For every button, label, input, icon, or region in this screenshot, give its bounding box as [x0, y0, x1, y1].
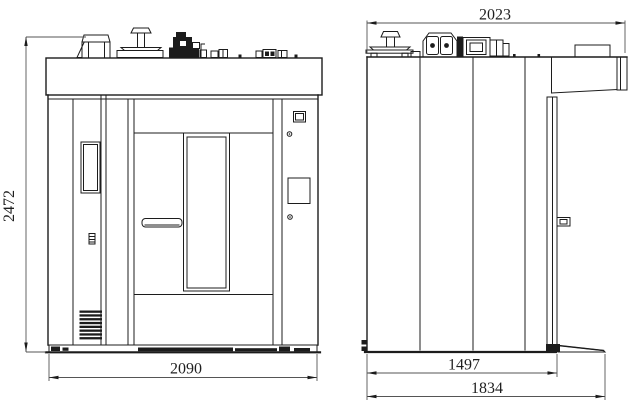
side-body — [362, 57, 628, 352]
burner-assembly — [169, 32, 200, 58]
control-panel-column — [287, 112, 310, 220]
dimension-height-label: 2472 — [1, 190, 18, 222]
loading-ramp — [558, 346, 605, 353]
side-steam-vent-pipe — [366, 32, 413, 58]
dimension-top-depth-label: 2023 — [479, 7, 511, 24]
side-fan-motor — [463, 38, 509, 58]
dimension-front-width-label: 2090 — [170, 361, 202, 378]
side-fitting-dot2 — [538, 54, 541, 57]
side-door — [546, 97, 570, 352]
side-view — [362, 32, 628, 353]
vent-grille — [80, 311, 103, 340]
display-window — [294, 112, 306, 123]
roof-fitting-dot2 — [295, 55, 298, 58]
oven-technical-drawing: 2472 2090 2023 1497 1834 — [0, 0, 640, 411]
dimension-body-depth-label: 1497 — [448, 357, 480, 374]
dimension-total-depth: 1834 — [367, 354, 605, 400]
canopy-vent-box — [575, 45, 610, 57]
dimension-total-depth-label: 1834 — [471, 380, 503, 397]
door-handle — [142, 219, 182, 228]
roof-bracket — [200, 44, 207, 58]
rating-label — [89, 234, 95, 245]
drawing-canvas: 2472 2090 2023 1497 1834 — [0, 0, 640, 411]
inspection-window — [81, 142, 100, 193]
side-motor-housing — [423, 33, 463, 57]
front-view — [46, 28, 322, 352]
side-small-box — [411, 52, 420, 58]
side-door-handle — [557, 218, 570, 227]
roof-hood-unit — [77, 35, 110, 58]
steam-vent-pipe — [117, 28, 163, 58]
door-window — [184, 133, 230, 291]
roof-junction-boxes-left — [211, 50, 228, 58]
oven-door — [134, 133, 273, 295]
canopy-hood — [552, 57, 628, 93]
roof-junction-boxes-right — [256, 50, 287, 58]
dimension-front-width: 2090 — [49, 354, 317, 381]
side-fitting-dot — [513, 54, 516, 57]
front-top-band — [46, 58, 322, 95]
roof-fitting-dot — [239, 55, 242, 58]
front-base — [46, 345, 320, 352]
control-display — [288, 178, 310, 204]
dimension-body-depth: 1497 — [367, 354, 557, 400]
